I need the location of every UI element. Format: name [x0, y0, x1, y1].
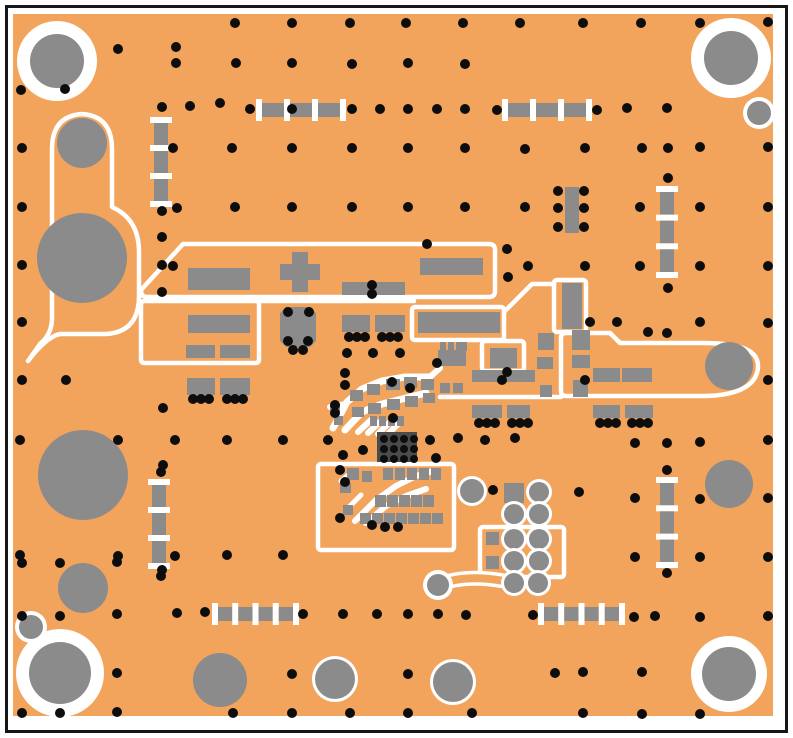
via	[222, 550, 232, 560]
via	[635, 202, 645, 212]
via	[695, 612, 705, 622]
via	[231, 58, 241, 68]
passive-component-pad	[262, 103, 284, 117]
via	[287, 669, 297, 679]
via	[523, 418, 533, 428]
via	[580, 143, 590, 153]
via	[695, 317, 705, 327]
via	[55, 611, 65, 621]
via	[17, 611, 27, 621]
silkscreen-tick	[150, 201, 172, 207]
via	[553, 186, 563, 196]
silkscreen-tick	[502, 99, 508, 121]
smd-pad	[387, 399, 400, 410]
via	[372, 609, 382, 619]
via	[17, 375, 27, 385]
via	[763, 435, 773, 445]
via	[287, 202, 297, 212]
smd-pad	[440, 383, 450, 393]
mounting-hole	[705, 460, 753, 508]
via	[460, 202, 470, 212]
mounting-hole	[57, 118, 107, 168]
via	[157, 102, 167, 112]
via	[112, 609, 122, 619]
smd-pad	[280, 264, 320, 280]
through-hole-pad	[427, 574, 449, 596]
pcb-board-svg	[0, 0, 793, 738]
smd-pad	[572, 355, 590, 368]
via	[763, 17, 773, 27]
thermal-via	[400, 455, 408, 463]
smd-pad	[350, 390, 363, 401]
through-hole-pad	[504, 573, 524, 593]
via	[157, 565, 167, 575]
smd-pad	[490, 348, 517, 368]
thermal-via	[390, 435, 398, 443]
via	[55, 558, 65, 568]
via	[520, 202, 530, 212]
via	[238, 394, 248, 404]
silkscreen-tick	[656, 505, 678, 511]
smd-pad	[562, 283, 582, 329]
via	[453, 433, 463, 443]
silkscreen-tick	[530, 99, 536, 121]
smd-pad	[367, 384, 380, 395]
via	[579, 222, 589, 232]
via	[523, 261, 533, 271]
via	[360, 332, 370, 342]
thermal-via	[380, 445, 388, 453]
via	[112, 707, 122, 717]
via	[170, 435, 180, 445]
smd-pad	[540, 385, 552, 397]
via	[230, 202, 240, 212]
via	[467, 708, 477, 718]
mounting-hole	[37, 213, 127, 303]
via	[358, 445, 368, 455]
via	[60, 84, 70, 94]
via	[432, 104, 442, 114]
via	[574, 487, 584, 497]
through-hole-pad	[460, 479, 484, 503]
smd-pad	[379, 416, 386, 426]
via	[550, 668, 560, 678]
via	[553, 203, 563, 213]
smd-pad	[387, 495, 398, 507]
mounting-hole	[29, 642, 91, 704]
via	[17, 317, 27, 327]
smd-pad	[423, 495, 434, 507]
via	[662, 438, 672, 448]
via	[16, 85, 26, 95]
silkscreen-tick	[579, 603, 585, 625]
silkscreen-tick	[148, 479, 170, 485]
via	[388, 413, 398, 423]
via	[222, 435, 232, 445]
via	[17, 260, 27, 270]
via	[287, 708, 297, 718]
via	[662, 328, 672, 338]
thermal-via	[400, 445, 408, 453]
smd-pad	[419, 468, 429, 480]
smd-pad	[593, 405, 620, 418]
via	[215, 98, 225, 108]
via	[553, 222, 563, 232]
silkscreen-tick	[150, 173, 172, 179]
smd-pad	[504, 483, 524, 503]
via	[520, 144, 530, 154]
smd-pad	[405, 396, 418, 407]
thermal-via	[400, 435, 408, 443]
smd-pad	[187, 378, 215, 395]
thermal-via	[390, 455, 398, 463]
through-hole-pad	[504, 551, 524, 571]
via	[298, 609, 308, 619]
via	[458, 18, 468, 28]
via	[637, 709, 647, 719]
via	[695, 709, 705, 719]
smd-pad	[395, 468, 405, 480]
silkscreen-tick	[656, 477, 678, 483]
via	[112, 668, 122, 678]
thermal-via	[380, 455, 388, 463]
via	[630, 438, 640, 448]
via	[401, 18, 411, 28]
via	[172, 203, 182, 213]
via	[17, 558, 27, 568]
passive-component-pad	[152, 485, 166, 507]
passive-component-pad	[660, 511, 674, 533]
via	[662, 465, 672, 475]
via	[578, 18, 588, 28]
via	[55, 708, 65, 718]
smd-pad	[186, 345, 215, 358]
passive-component-pad	[154, 151, 168, 173]
smd-pad	[342, 315, 370, 332]
via	[579, 186, 589, 196]
smd-pad	[420, 258, 483, 275]
smd-pad	[352, 407, 364, 417]
via	[228, 708, 238, 718]
via	[663, 283, 673, 293]
via	[663, 143, 673, 153]
via	[185, 101, 195, 111]
smd-pad	[375, 495, 386, 507]
smd-pad	[347, 468, 359, 480]
via	[157, 206, 167, 216]
via	[304, 307, 314, 317]
via	[387, 377, 397, 387]
passive-component-pad	[318, 103, 340, 117]
through-hole-pad	[315, 659, 355, 699]
via	[200, 607, 210, 617]
silkscreen-tick	[148, 507, 170, 513]
via	[393, 522, 403, 532]
via	[580, 375, 590, 385]
smd-pad	[220, 345, 250, 358]
smd-pad	[486, 532, 499, 545]
thermal-via	[410, 445, 418, 453]
silkscreen-tick	[656, 272, 678, 278]
via	[695, 552, 705, 562]
via	[403, 104, 413, 114]
smd-pad	[411, 495, 422, 507]
passive-component-pad	[564, 103, 586, 117]
via	[637, 143, 647, 153]
via	[287, 143, 297, 153]
silkscreen-tick	[148, 535, 170, 541]
silkscreen-tick	[150, 117, 172, 123]
smd-pad	[420, 513, 431, 524]
via	[287, 58, 297, 68]
via	[245, 104, 255, 114]
via	[422, 239, 432, 249]
via	[515, 18, 525, 28]
silkscreen-tick	[599, 603, 605, 625]
through-hole-pad	[529, 551, 549, 571]
smd-pad	[397, 416, 404, 426]
via	[763, 261, 773, 271]
silkscreen-tick	[253, 603, 259, 625]
via	[662, 568, 672, 578]
through-hole-pad	[504, 529, 524, 549]
passive-component-pad	[279, 607, 293, 621]
passive-component-pad	[154, 123, 168, 145]
via	[340, 477, 350, 487]
via	[303, 336, 313, 346]
via	[380, 522, 390, 532]
via	[347, 59, 357, 69]
via	[17, 202, 27, 212]
smd-pad	[537, 357, 553, 369]
silkscreen-tick	[212, 603, 218, 625]
smd-pad	[622, 368, 652, 382]
silkscreen-tick	[619, 603, 625, 625]
smd-pad	[362, 471, 372, 482]
smd-pad	[572, 330, 590, 350]
smd-pad	[368, 403, 381, 414]
via	[622, 103, 632, 113]
via	[345, 708, 355, 718]
via	[403, 609, 413, 619]
passive-component-pad	[152, 513, 166, 535]
via	[650, 611, 660, 621]
thermal-via	[410, 455, 418, 463]
smd-pad	[188, 268, 250, 290]
via	[345, 18, 355, 28]
smd-pad	[343, 505, 353, 515]
smd-pad	[399, 495, 410, 507]
via	[611, 418, 621, 428]
via	[635, 261, 645, 271]
through-hole-pad	[433, 662, 473, 702]
smd-pad	[423, 393, 435, 403]
via	[340, 380, 350, 390]
via	[425, 435, 435, 445]
mounting-hole	[58, 563, 108, 613]
passive-component-pad	[585, 607, 599, 621]
via	[298, 345, 308, 355]
via	[230, 18, 240, 28]
via	[503, 272, 513, 282]
via	[168, 143, 178, 153]
via	[368, 348, 378, 358]
via	[156, 467, 166, 477]
through-hole-pad	[504, 504, 524, 524]
via	[283, 336, 293, 346]
smd-pad	[438, 350, 466, 366]
via	[61, 375, 71, 385]
smd-pad	[440, 342, 446, 351]
via	[393, 332, 403, 342]
smd-pad	[408, 513, 419, 524]
via	[460, 104, 470, 114]
via	[579, 203, 589, 213]
via	[403, 143, 413, 153]
silkscreen-tick	[538, 603, 544, 625]
via	[375, 104, 385, 114]
passive-component-pad	[154, 179, 168, 201]
smd-pad	[407, 468, 417, 480]
via	[431, 453, 441, 463]
via	[763, 142, 773, 152]
via	[763, 375, 773, 385]
board-surface	[13, 14, 773, 716]
silkscreen-tick	[586, 99, 592, 121]
via	[335, 465, 345, 475]
via	[283, 307, 293, 317]
through-hole-pad	[529, 504, 549, 524]
via	[15, 435, 25, 445]
via	[585, 317, 595, 327]
smd-pad	[486, 556, 499, 569]
via	[432, 358, 442, 368]
via	[168, 261, 178, 271]
via	[330, 408, 340, 418]
via	[695, 437, 705, 447]
via	[338, 450, 348, 460]
via	[17, 143, 27, 153]
via	[17, 708, 27, 718]
silkscreen-tick	[312, 99, 318, 121]
smd-pad	[593, 368, 620, 382]
via	[695, 494, 705, 504]
via	[460, 143, 470, 153]
passive-component-pad	[259, 607, 273, 621]
passive-component-pad	[152, 541, 166, 563]
via	[403, 669, 413, 679]
silkscreen-tick	[656, 243, 678, 249]
via	[612, 317, 622, 327]
silkscreen-tick	[656, 562, 678, 568]
via	[227, 143, 237, 153]
via	[763, 318, 773, 328]
via	[204, 394, 214, 404]
via	[342, 348, 352, 358]
smd-pad	[462, 342, 467, 351]
passive-component-pad	[660, 221, 674, 244]
via	[433, 609, 443, 619]
passive-component-pad	[605, 607, 619, 621]
via	[335, 513, 345, 523]
via	[488, 485, 498, 495]
via	[157, 232, 167, 242]
via	[157, 287, 167, 297]
via	[763, 552, 773, 562]
silkscreen-tick	[656, 186, 678, 192]
via	[157, 260, 167, 270]
via	[347, 202, 357, 212]
through-hole-pad	[529, 482, 549, 502]
silkscreen-tick	[232, 603, 238, 625]
mounting-hole	[30, 34, 84, 88]
silkscreen-tick	[656, 215, 678, 221]
smd-pad	[507, 405, 530, 418]
smd-pad	[432, 513, 443, 524]
passive-component-pad	[564, 607, 578, 621]
via	[278, 550, 288, 560]
pcb-layout-viewer	[0, 0, 793, 738]
via	[112, 557, 122, 567]
silkscreen-tick	[340, 99, 346, 121]
via	[347, 143, 357, 153]
via	[528, 610, 538, 620]
through-hole-pad	[747, 101, 771, 125]
via	[763, 611, 773, 621]
via	[643, 327, 653, 337]
via	[763, 493, 773, 503]
via	[113, 44, 123, 54]
smd-pad	[456, 342, 462, 351]
mounting-hole	[704, 31, 758, 85]
via	[367, 289, 377, 299]
smd-pad	[383, 468, 393, 480]
passive-component-pad	[536, 103, 558, 117]
via	[592, 105, 602, 115]
thermal-via	[410, 435, 418, 443]
via	[403, 202, 413, 212]
passive-component-pad	[660, 483, 674, 505]
smd-pad	[375, 315, 405, 332]
via	[763, 202, 773, 212]
via	[323, 435, 333, 445]
via	[287, 104, 297, 114]
silkscreen-tick	[256, 99, 262, 121]
via	[461, 610, 471, 620]
smd-pad	[565, 187, 579, 233]
via	[630, 493, 640, 503]
silkscreen-tick	[273, 603, 279, 625]
via	[113, 435, 123, 445]
smd-pad	[421, 379, 434, 390]
passive-component-pad	[544, 607, 558, 621]
via	[502, 367, 512, 377]
mounting-hole	[702, 647, 756, 701]
via	[338, 609, 348, 619]
smd-pad	[448, 342, 454, 351]
via	[403, 708, 413, 718]
smd-pad	[453, 383, 463, 393]
via	[643, 418, 653, 428]
via	[172, 608, 182, 618]
via	[367, 280, 377, 290]
passive-component-pad	[660, 540, 674, 562]
silkscreen-tick	[558, 603, 564, 625]
via	[695, 202, 705, 212]
via	[492, 105, 502, 115]
smd-pad	[431, 468, 441, 480]
passive-component-pad	[660, 192, 674, 215]
